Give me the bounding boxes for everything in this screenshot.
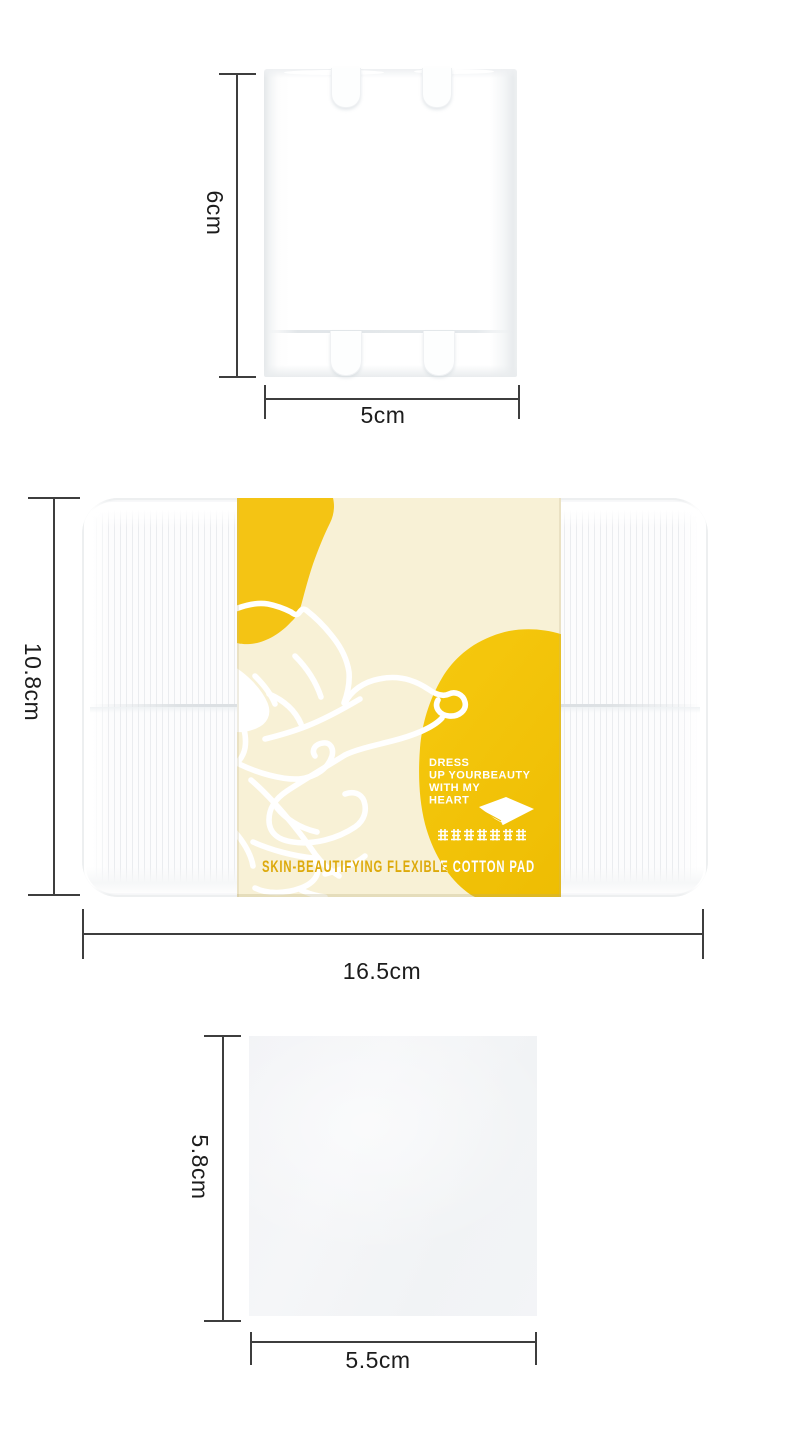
- svg-text:WITH MY: WITH MY: [429, 782, 480, 794]
- svg-text:HEART: HEART: [429, 795, 469, 807]
- svg-text:DRESS: DRESS: [429, 757, 469, 769]
- svg-text:UP YOURBEAUTY: UP YOURBEAUTY: [429, 770, 531, 782]
